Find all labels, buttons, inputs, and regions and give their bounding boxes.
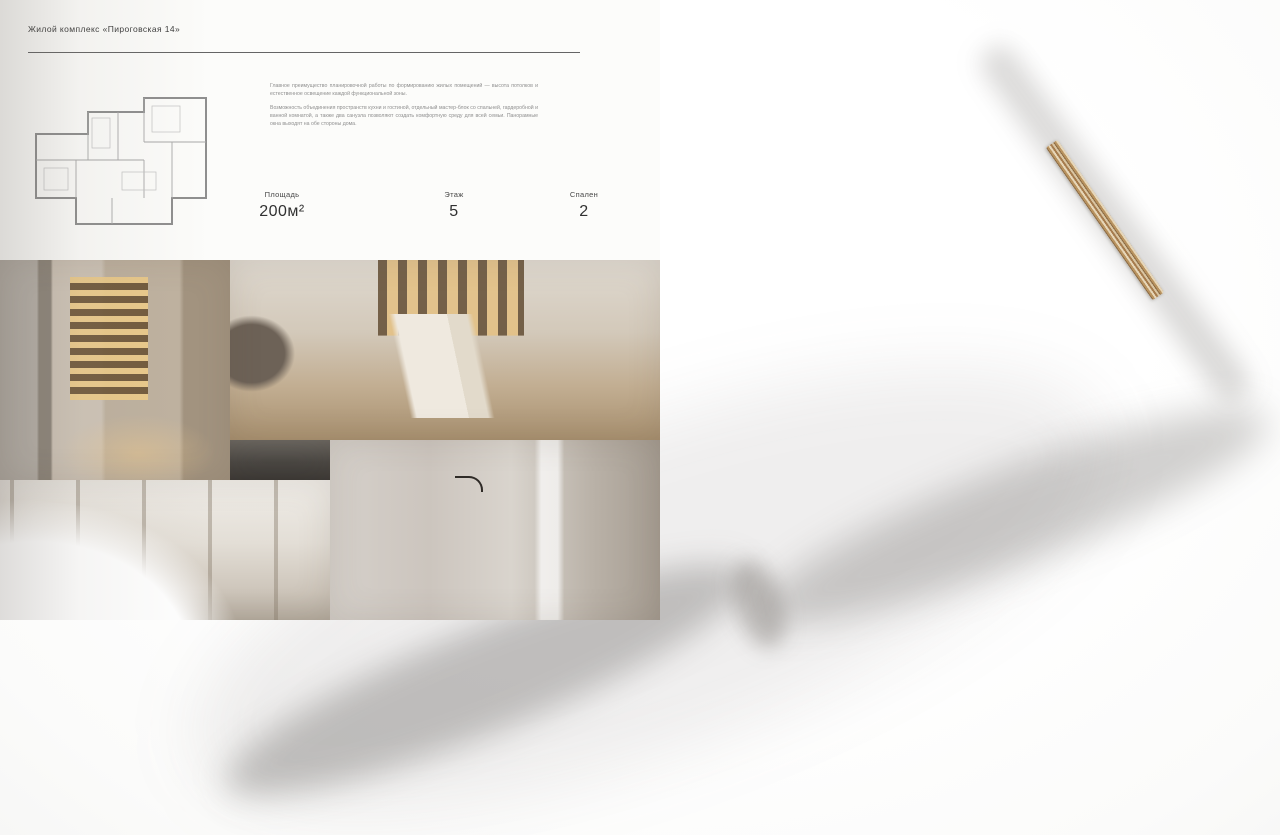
right-description-paragraph-2: Возможность объединения пространств кухн…: [270, 104, 538, 128]
stat-area-label: Площадь: [244, 190, 320, 199]
stat-bedrooms-value: 2: [546, 203, 622, 221]
right-page-content: Жилой комплекс «Пироговская 14» Главное …: [0, 0, 660, 620]
floor-plan-200: [22, 86, 217, 236]
photo-hallway: [0, 480, 330, 620]
photo-home-office: [230, 260, 660, 440]
right-header-rule: [28, 52, 580, 53]
stat-floor: Этаж 5: [416, 190, 492, 221]
stat-floor-label: Этаж: [416, 190, 492, 199]
photo-lit-wardrobe: [0, 260, 230, 480]
right-description-paragraph-1: Главное преимущество планировочной работ…: [270, 82, 538, 98]
right-page: Жилой комплекс «Пироговская 14» Главное …: [0, 0, 660, 620]
right-page-title: Жилой комплекс «Пироговская 14»: [28, 24, 180, 34]
stat-area-value: 200м²: [244, 203, 320, 221]
stat-floor-value: 5: [416, 203, 492, 221]
photo-backdrop: Жилой комплекс «Пироговская 14» Р: [0, 0, 1280, 835]
stat-bedrooms-label: Спален: [546, 190, 622, 199]
stat-bedrooms: Спален 2: [546, 190, 622, 221]
stat-area: Площадь 200м²: [244, 190, 320, 221]
page-stack-fore-edge: [1046, 140, 1164, 300]
photo-bathroom: [330, 440, 660, 620]
photo-kitchen-appliance: [230, 440, 330, 480]
bathroom-faucet-shape: [455, 476, 483, 492]
